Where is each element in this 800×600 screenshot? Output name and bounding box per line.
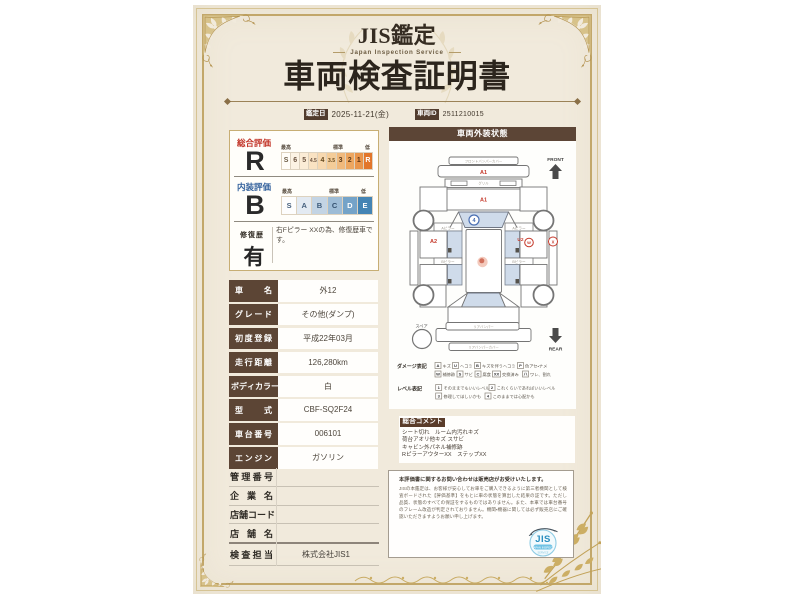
svg-text:A1: A1 (480, 197, 487, 203)
svg-text:B: B (476, 363, 479, 368)
svg-text:U2: U2 (517, 237, 523, 243)
svg-text:これくらいであればいいレベル: これくらいであればいいレベル (497, 384, 555, 391)
svg-text:ワレ、割れ: ワレ、割れ (530, 370, 552, 377)
svg-text:ヘコミ: ヘコミ (460, 363, 473, 368)
svg-text:ダメージ表記: ダメージ表記 (397, 363, 427, 370)
svg-text:ハ: ハ (524, 371, 528, 376)
svg-text:Bピラー: Bピラー (441, 259, 455, 264)
svg-text:A1: A1 (480, 170, 487, 176)
svg-text:スペア: スペア (415, 323, 427, 329)
svg-text:JIS: JIS (535, 534, 550, 545)
svg-text:Aピラー: Aピラー (512, 225, 526, 230)
svg-text:Aピラー: Aピラー (441, 225, 455, 230)
svg-text:XX: XX (494, 371, 500, 376)
svg-text:REAR: REAR (549, 346, 563, 352)
svg-text:W: W (527, 240, 531, 245)
svg-text:Bピラー: Bピラー (512, 259, 526, 264)
svg-text:サビ: サビ (465, 370, 473, 377)
svg-text:U: U (454, 363, 457, 368)
svg-text:交換済み: 交換済み (502, 370, 519, 377)
svg-text:修理してほしいかも: 修理してほしいかも (444, 392, 482, 399)
svg-text:W: W (436, 371, 440, 376)
svg-text:キズを伴うヘコミ: キズを伴うヘコミ (482, 362, 516, 369)
svg-text:A: A (437, 363, 440, 368)
svg-text:C: C (477, 371, 480, 376)
svg-text:A2: A2 (430, 239, 437, 245)
svg-text:FRONT: FRONT (547, 157, 564, 163)
svg-text:X: X (552, 239, 555, 244)
svg-text:このままでは心配かも: このままでは心配かも (493, 392, 535, 399)
svg-text:グリル: グリル (478, 180, 489, 185)
svg-text:色アセ・ナメ: 色アセ・ナメ (525, 362, 547, 369)
svg-text:フロントバンパーカバー: フロントバンパーカバー (465, 158, 503, 163)
svg-text:腐食: 腐食 (483, 370, 492, 377)
svg-text:SERVICE: SERVICE (538, 552, 549, 555)
svg-text:JAPAN INSPECT: JAPAN INSPECT (532, 545, 554, 549)
svg-text:そのままでもいいレベル: そのままでもいいレベル (444, 384, 490, 391)
svg-text:補修跡: 補修跡 (443, 370, 456, 377)
svg-text:リアバンパーカバー: リアバンパーカバー (468, 344, 499, 349)
svg-text:S: S (459, 371, 462, 376)
svg-text:リアバンパー: リアバンパー (473, 324, 494, 329)
svg-text:レベル表記: レベル表記 (397, 385, 422, 392)
svg-text:P: P (519, 363, 522, 368)
svg-text:キズ: キズ (443, 362, 451, 369)
